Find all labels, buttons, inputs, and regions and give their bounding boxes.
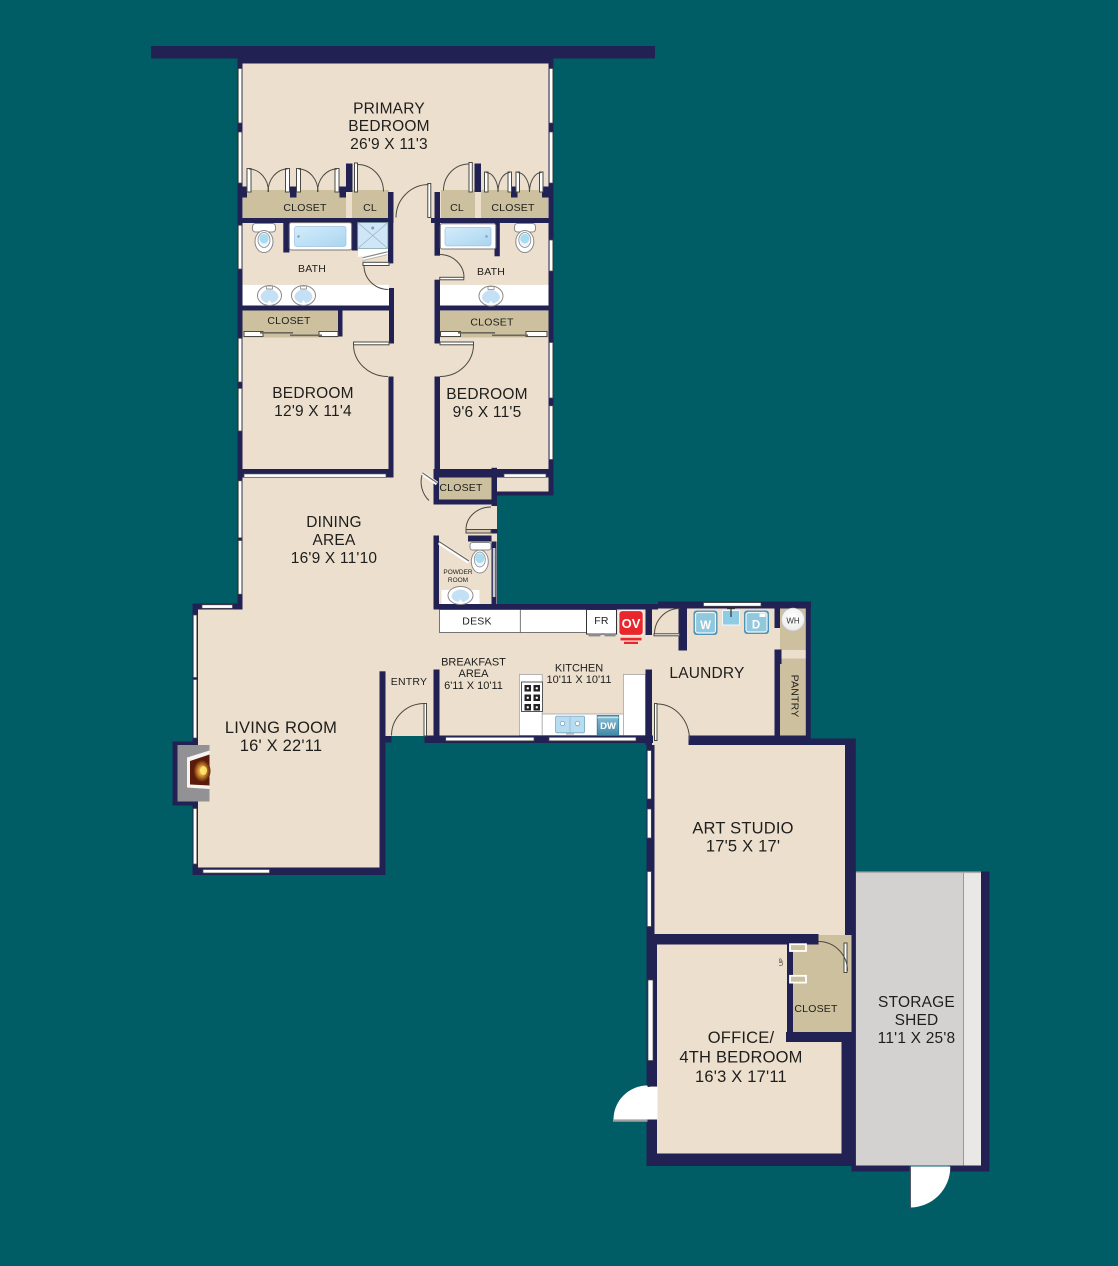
svg-text:FR: FR <box>594 615 609 627</box>
svg-text:11'1 X 25'8: 11'1 X 25'8 <box>878 1030 956 1047</box>
svg-text:LIVING ROOM: LIVING ROOM <box>225 719 337 737</box>
svg-text:CLOSET: CLOSET <box>283 202 327 214</box>
svg-text:AREA: AREA <box>459 668 490 680</box>
svg-text:SHED: SHED <box>895 1012 939 1029</box>
svg-text:16' X 22'11: 16' X 22'11 <box>240 737 323 755</box>
svg-text:ENTRY: ENTRY <box>391 676 427 688</box>
svg-text:DW: DW <box>600 721 616 732</box>
svg-text:CLOSET: CLOSET <box>439 482 483 494</box>
svg-text:10'11 X 10'11: 10'11 X 10'11 <box>547 674 612 686</box>
svg-text:PRIMARY: PRIMARY <box>353 101 425 118</box>
svg-text:LAUNDRY: LAUNDRY <box>669 665 744 682</box>
svg-text:CLOSET: CLOSET <box>470 317 514 329</box>
svg-text:D: D <box>752 620 760 632</box>
svg-text:9'6 X 11'5: 9'6 X 11'5 <box>453 404 522 421</box>
svg-text:12'9 X 11'4: 12'9 X 11'4 <box>274 403 352 420</box>
svg-text:BATH: BATH <box>477 266 505 278</box>
svg-text:BEDROOM: BEDROOM <box>272 385 354 402</box>
svg-text:OFFICE/: OFFICE/ <box>708 1029 775 1047</box>
svg-text:CL: CL <box>450 202 464 214</box>
svg-text:PANTRY: PANTRY <box>789 675 801 718</box>
svg-text:W: W <box>700 620 711 632</box>
svg-text:UP: UP <box>779 958 785 966</box>
svg-text:DESK: DESK <box>462 616 491 628</box>
svg-text:BATH: BATH <box>298 263 326 275</box>
svg-text:6'11 X 10'11: 6'11 X 10'11 <box>444 680 503 692</box>
svg-text:16'9 X 11'10: 16'9 X 11'10 <box>291 550 378 567</box>
svg-text:26'9 X 11'3: 26'9 X 11'3 <box>350 136 428 153</box>
svg-text:CLOSET: CLOSET <box>267 315 311 327</box>
svg-text:4TH BEDROOM: 4TH BEDROOM <box>679 1049 802 1067</box>
svg-text:BEDROOM: BEDROOM <box>446 386 528 403</box>
svg-text:ROOM: ROOM <box>448 577 468 584</box>
svg-text:KITCHEN: KITCHEN <box>555 663 603 675</box>
svg-text:CL: CL <box>363 202 377 214</box>
svg-text:ART STUDIO: ART STUDIO <box>692 820 793 838</box>
svg-text:16'3 X 17'11: 16'3 X 17'11 <box>695 1068 787 1086</box>
svg-text:POWDER: POWDER <box>443 569 473 576</box>
svg-text:DINING: DINING <box>306 514 361 531</box>
svg-text:OV: OV <box>622 616 641 631</box>
svg-text:CLOSET: CLOSET <box>794 1003 838 1015</box>
svg-text:AREA: AREA <box>312 532 355 549</box>
svg-text:STORAGE: STORAGE <box>878 994 955 1011</box>
svg-text:17'5 X 17': 17'5 X 17' <box>706 838 780 856</box>
svg-text:CLOSET: CLOSET <box>491 202 535 214</box>
svg-text:BEDROOM: BEDROOM <box>348 118 430 135</box>
svg-text:WH: WH <box>786 617 800 626</box>
svg-text:BREAKFAST: BREAKFAST <box>441 657 506 669</box>
